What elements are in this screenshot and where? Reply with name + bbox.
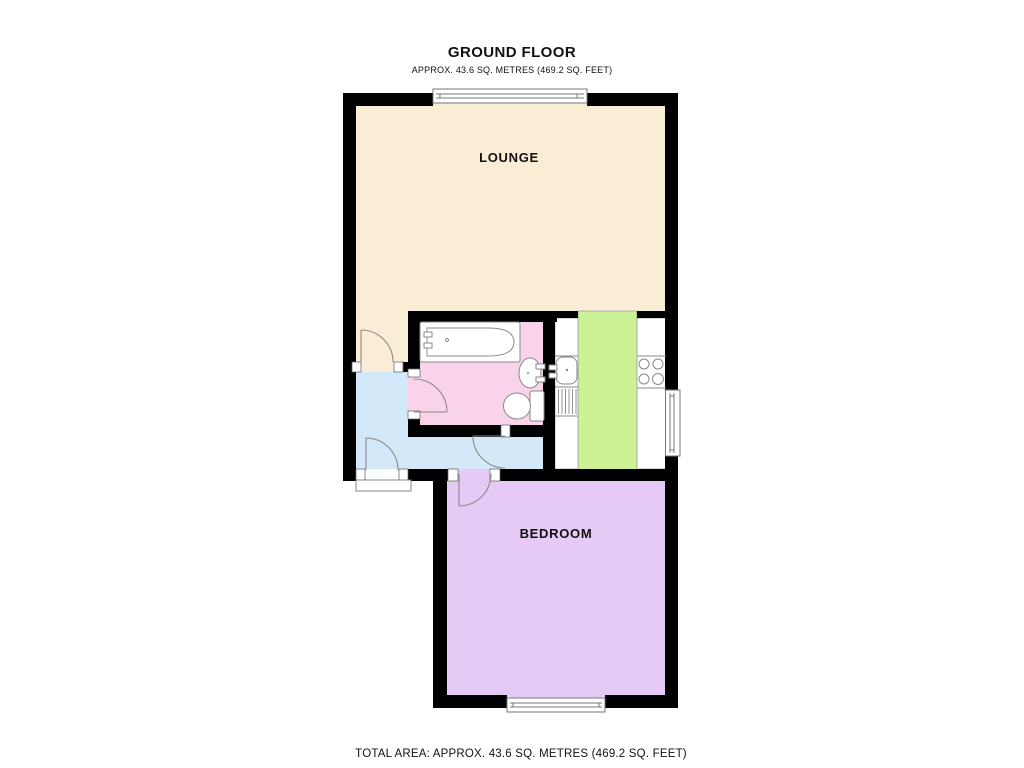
jamb-front-door-right [399,469,408,481]
hob-ring [639,374,649,384]
floorplan-page: GROUND FLOOR APPROX. 43.6 SQ. METRES (46… [0,0,1024,768]
jamb-bedroom-door-left [448,469,458,481]
footer-total-area: TOTAL AREA: APPROX. 43.6 SQ. METRES (469… [9,748,1024,760]
wall-exterior-left [343,93,356,481]
jamb-lounge-door-right [394,362,403,372]
bedroom-label: BEDROOM [520,526,593,541]
kitchen-counter-right [637,318,666,469]
floorplan-drawing: LOUNGE BEDROOM [0,0,1024,768]
wall-kitchen-left [543,311,555,481]
wall-bedroom-top [499,469,678,481]
wall-exterior-top-left [343,93,433,106]
sink-tap [549,373,557,378]
bath-tap [424,332,432,337]
bathroom-door-opening [408,377,420,411]
toilet-bowl [504,393,531,419]
wall-bedroom-bottom-right [605,695,678,708]
toilet [504,391,545,421]
hob-ring [639,359,649,369]
wall-exterior-top-right [587,93,678,106]
basin-tap [536,364,545,369]
wall-kitchen-top-right [637,311,666,318]
wall-kitchen-top-left [555,311,578,318]
lounge-label: LOUNGE [479,150,539,165]
wall-bedroom-bottom-left [433,695,507,708]
wall-bathroom-bottom [408,425,543,437]
sink-tap [549,365,557,370]
hob-ring [653,374,664,385]
hob-ring [653,359,663,369]
lounge-window [433,89,587,103]
jamb-front-door-left [356,469,365,481]
toilet-cistern [530,391,544,421]
jamb-bathroom-door-top [408,369,420,377]
bath-tap [424,343,432,348]
bedroom-window [507,698,605,712]
kitchen-window [666,390,681,456]
lounge-door-opening [361,362,394,372]
basin-tap [536,377,545,382]
kitchen-floor [578,311,637,471]
jamb-cupboard-door [501,425,510,437]
wall-bedroom-left [433,469,447,708]
bedroom-door-opening [458,469,490,481]
wall-bathroom-top [408,311,557,322]
front-door-threshold [356,480,411,491]
jamb-lounge-door-left [352,362,361,372]
bath-tub [420,322,520,362]
front-door-opening [365,469,399,481]
wall-bathroom-left-upper [408,311,420,369]
